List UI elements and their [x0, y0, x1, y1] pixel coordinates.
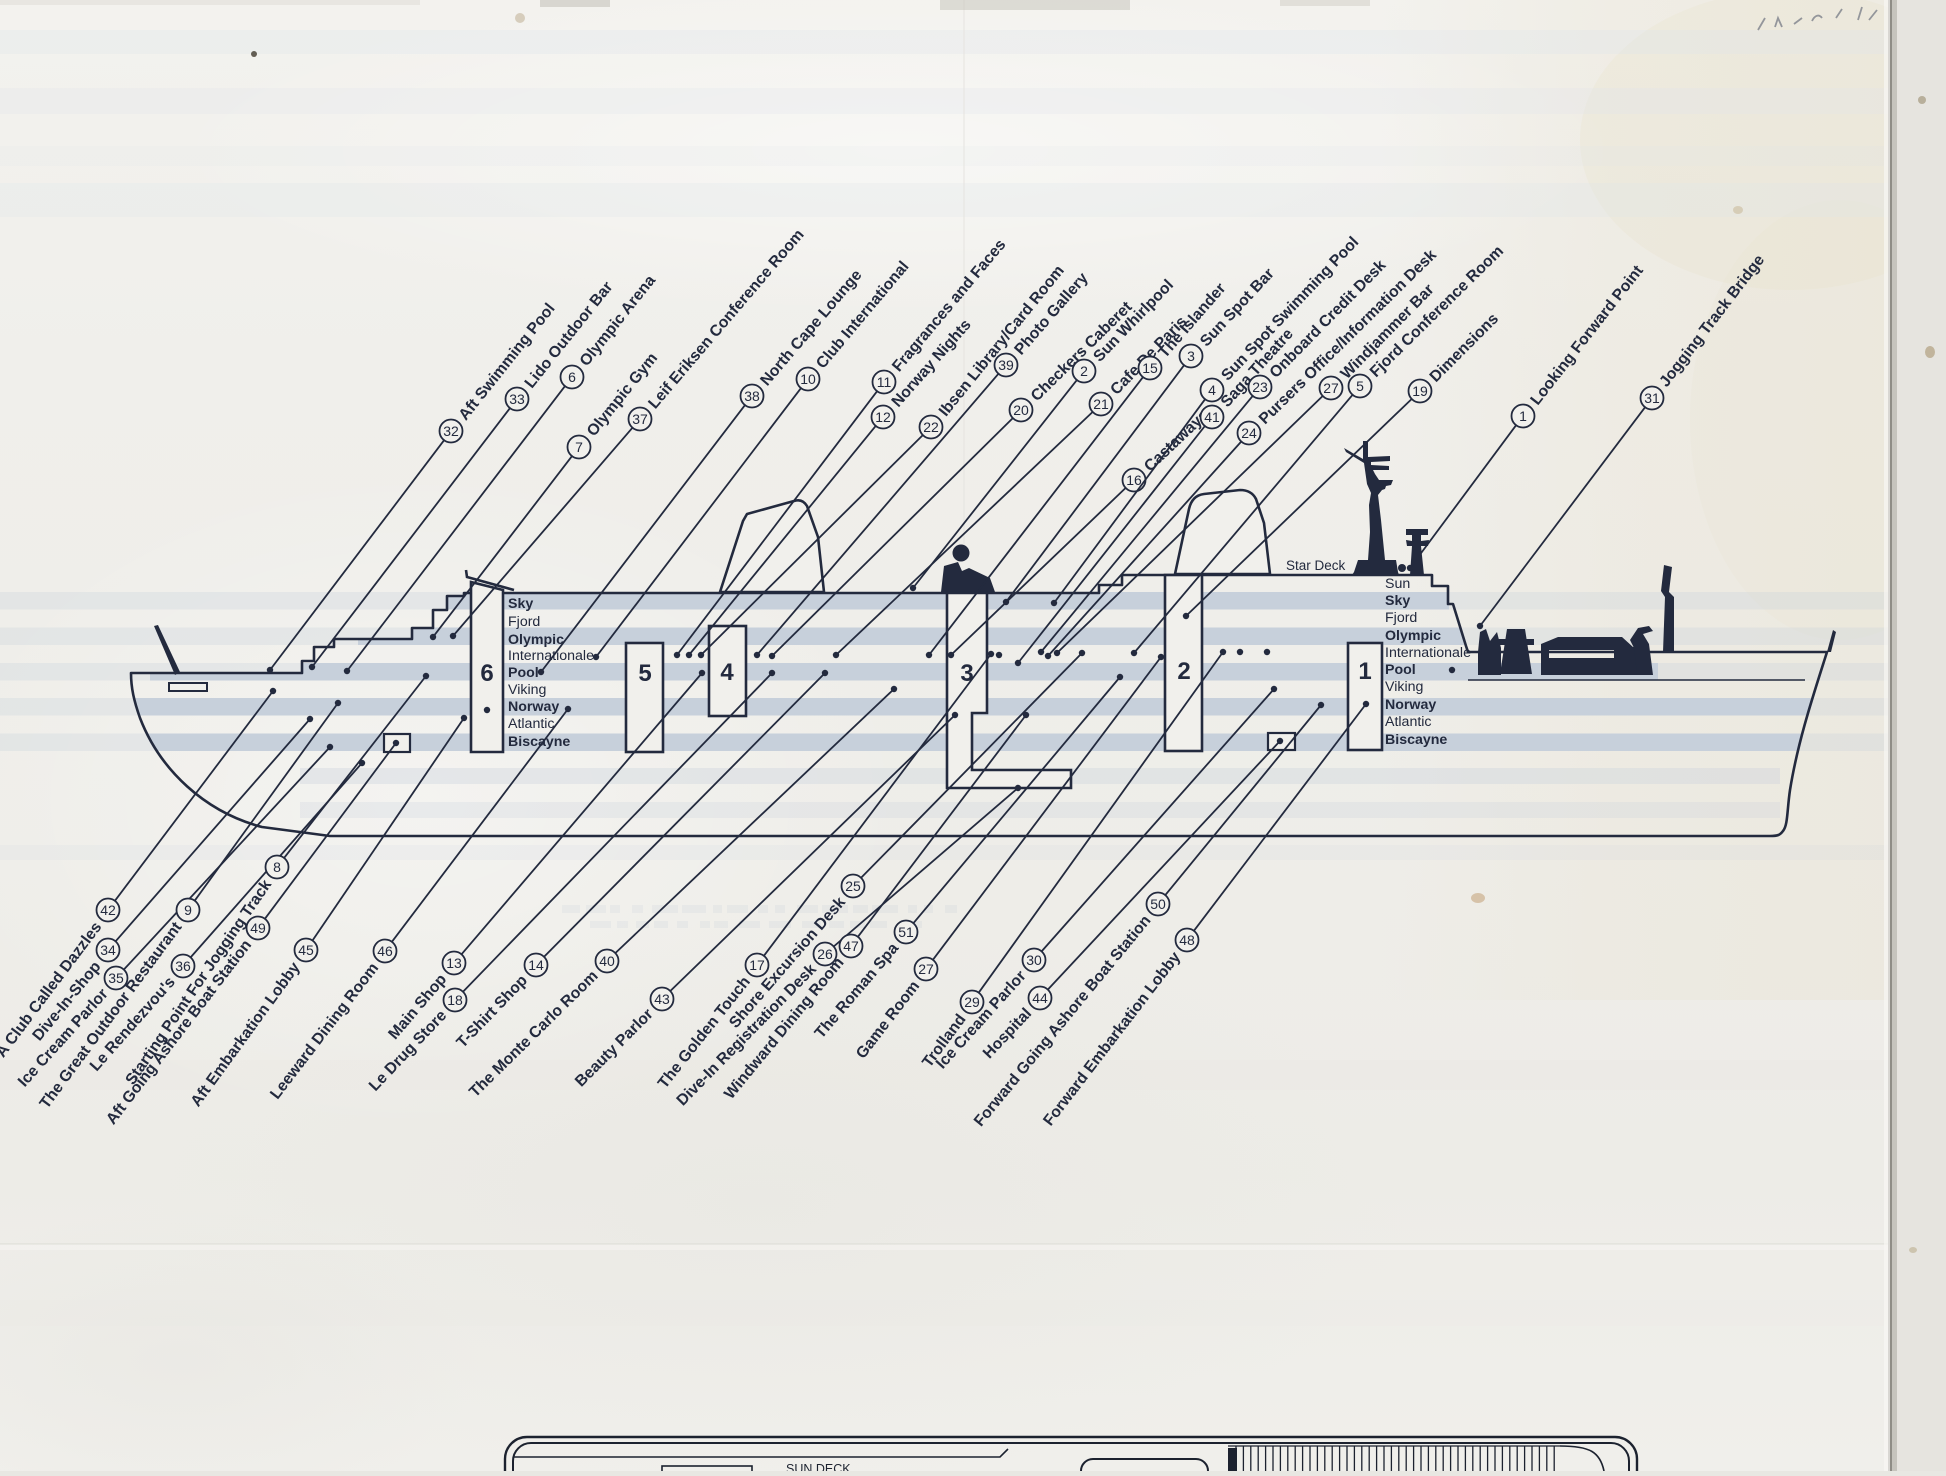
svg-text:40: 40 — [599, 953, 615, 969]
svg-text:Internationale: Internationale — [1385, 645, 1471, 661]
svg-text:25: 25 — [845, 878, 861, 894]
svg-text:42: 42 — [100, 902, 116, 918]
svg-text:15: 15 — [1142, 360, 1158, 376]
svg-text:Pool: Pool — [508, 665, 539, 681]
svg-text:11: 11 — [877, 374, 892, 390]
svg-text:37: 37 — [632, 411, 648, 427]
svg-text:Olympic: Olympic — [508, 632, 564, 648]
svg-text:50: 50 — [1150, 896, 1166, 912]
svg-text:14: 14 — [528, 957, 544, 973]
svg-text:10: 10 — [800, 371, 816, 387]
svg-text:Sun: Sun — [1385, 576, 1410, 592]
svg-text:Internationale: Internationale — [508, 648, 594, 664]
svg-text:38: 38 — [744, 388, 760, 404]
svg-text:Viking: Viking — [508, 682, 546, 698]
svg-text:43: 43 — [654, 991, 670, 1007]
svg-text:Fjord: Fjord — [1385, 610, 1417, 626]
svg-text:35: 35 — [108, 970, 124, 986]
svg-text:24: 24 — [1241, 425, 1257, 441]
svg-text:34: 34 — [100, 942, 116, 958]
svg-text:19: 19 — [1412, 383, 1428, 399]
svg-text:3: 3 — [960, 660, 973, 687]
svg-text:Norway: Norway — [1385, 697, 1436, 713]
svg-text:31: 31 — [1644, 390, 1660, 406]
svg-text:6: 6 — [568, 369, 576, 385]
svg-text:30: 30 — [1026, 952, 1042, 968]
svg-text:17: 17 — [749, 957, 765, 973]
svg-text:5: 5 — [638, 660, 651, 687]
svg-text:Biscayne: Biscayne — [1385, 732, 1447, 748]
svg-text:12: 12 — [875, 409, 891, 425]
svg-text:22: 22 — [923, 419, 939, 435]
svg-text:6: 6 — [480, 660, 493, 687]
svg-text:Sky: Sky — [1385, 593, 1410, 609]
svg-text:4: 4 — [1208, 382, 1216, 398]
svg-text:47: 47 — [843, 938, 859, 954]
svg-text:20: 20 — [1013, 402, 1029, 418]
svg-text:16: 16 — [1126, 472, 1142, 488]
svg-text:23: 23 — [1252, 379, 1268, 395]
svg-text:36: 36 — [175, 958, 191, 974]
svg-text:21: 21 — [1093, 396, 1109, 412]
svg-text:1: 1 — [1358, 658, 1371, 685]
svg-text:41: 41 — [1204, 409, 1220, 425]
svg-text:Star Deck: Star Deck — [1286, 558, 1346, 573]
svg-text:48: 48 — [1179, 932, 1195, 948]
svg-text:Atlantic: Atlantic — [1385, 714, 1432, 730]
svg-text:2: 2 — [1080, 363, 1088, 379]
svg-text:2: 2 — [1177, 658, 1190, 685]
svg-text:44: 44 — [1032, 990, 1048, 1006]
svg-text:29: 29 — [964, 994, 980, 1010]
svg-text:7: 7 — [575, 439, 583, 455]
svg-text:4: 4 — [720, 659, 734, 686]
svg-text:39: 39 — [998, 357, 1014, 373]
svg-text:Pool: Pool — [1385, 662, 1416, 678]
svg-text:27: 27 — [918, 961, 934, 977]
svg-text:18: 18 — [447, 992, 463, 1008]
svg-text:3: 3 — [1187, 348, 1195, 364]
svg-text:Norway: Norway — [508, 699, 559, 715]
svg-text:8: 8 — [273, 859, 281, 875]
svg-text:27: 27 — [1323, 380, 1339, 396]
svg-text:32: 32 — [443, 423, 459, 439]
svg-text:33: 33 — [509, 391, 525, 407]
svg-text:5: 5 — [1356, 378, 1364, 394]
svg-text:13: 13 — [446, 955, 462, 971]
svg-text:Atlantic: Atlantic — [508, 716, 555, 732]
svg-text:Olympic: Olympic — [1385, 628, 1441, 644]
svg-text:9: 9 — [184, 902, 192, 918]
svg-text:Sky: Sky — [508, 596, 533, 612]
svg-text:51: 51 — [898, 924, 914, 940]
svg-text:45: 45 — [298, 942, 314, 958]
svg-text:Fjord: Fjord — [508, 614, 540, 630]
svg-text:SUN DECK: SUN DECK — [786, 1462, 851, 1471]
svg-text:49: 49 — [250, 920, 266, 936]
svg-text:46: 46 — [377, 943, 393, 959]
svg-text:1: 1 — [1519, 408, 1527, 424]
svg-text:Viking: Viking — [1385, 679, 1423, 695]
